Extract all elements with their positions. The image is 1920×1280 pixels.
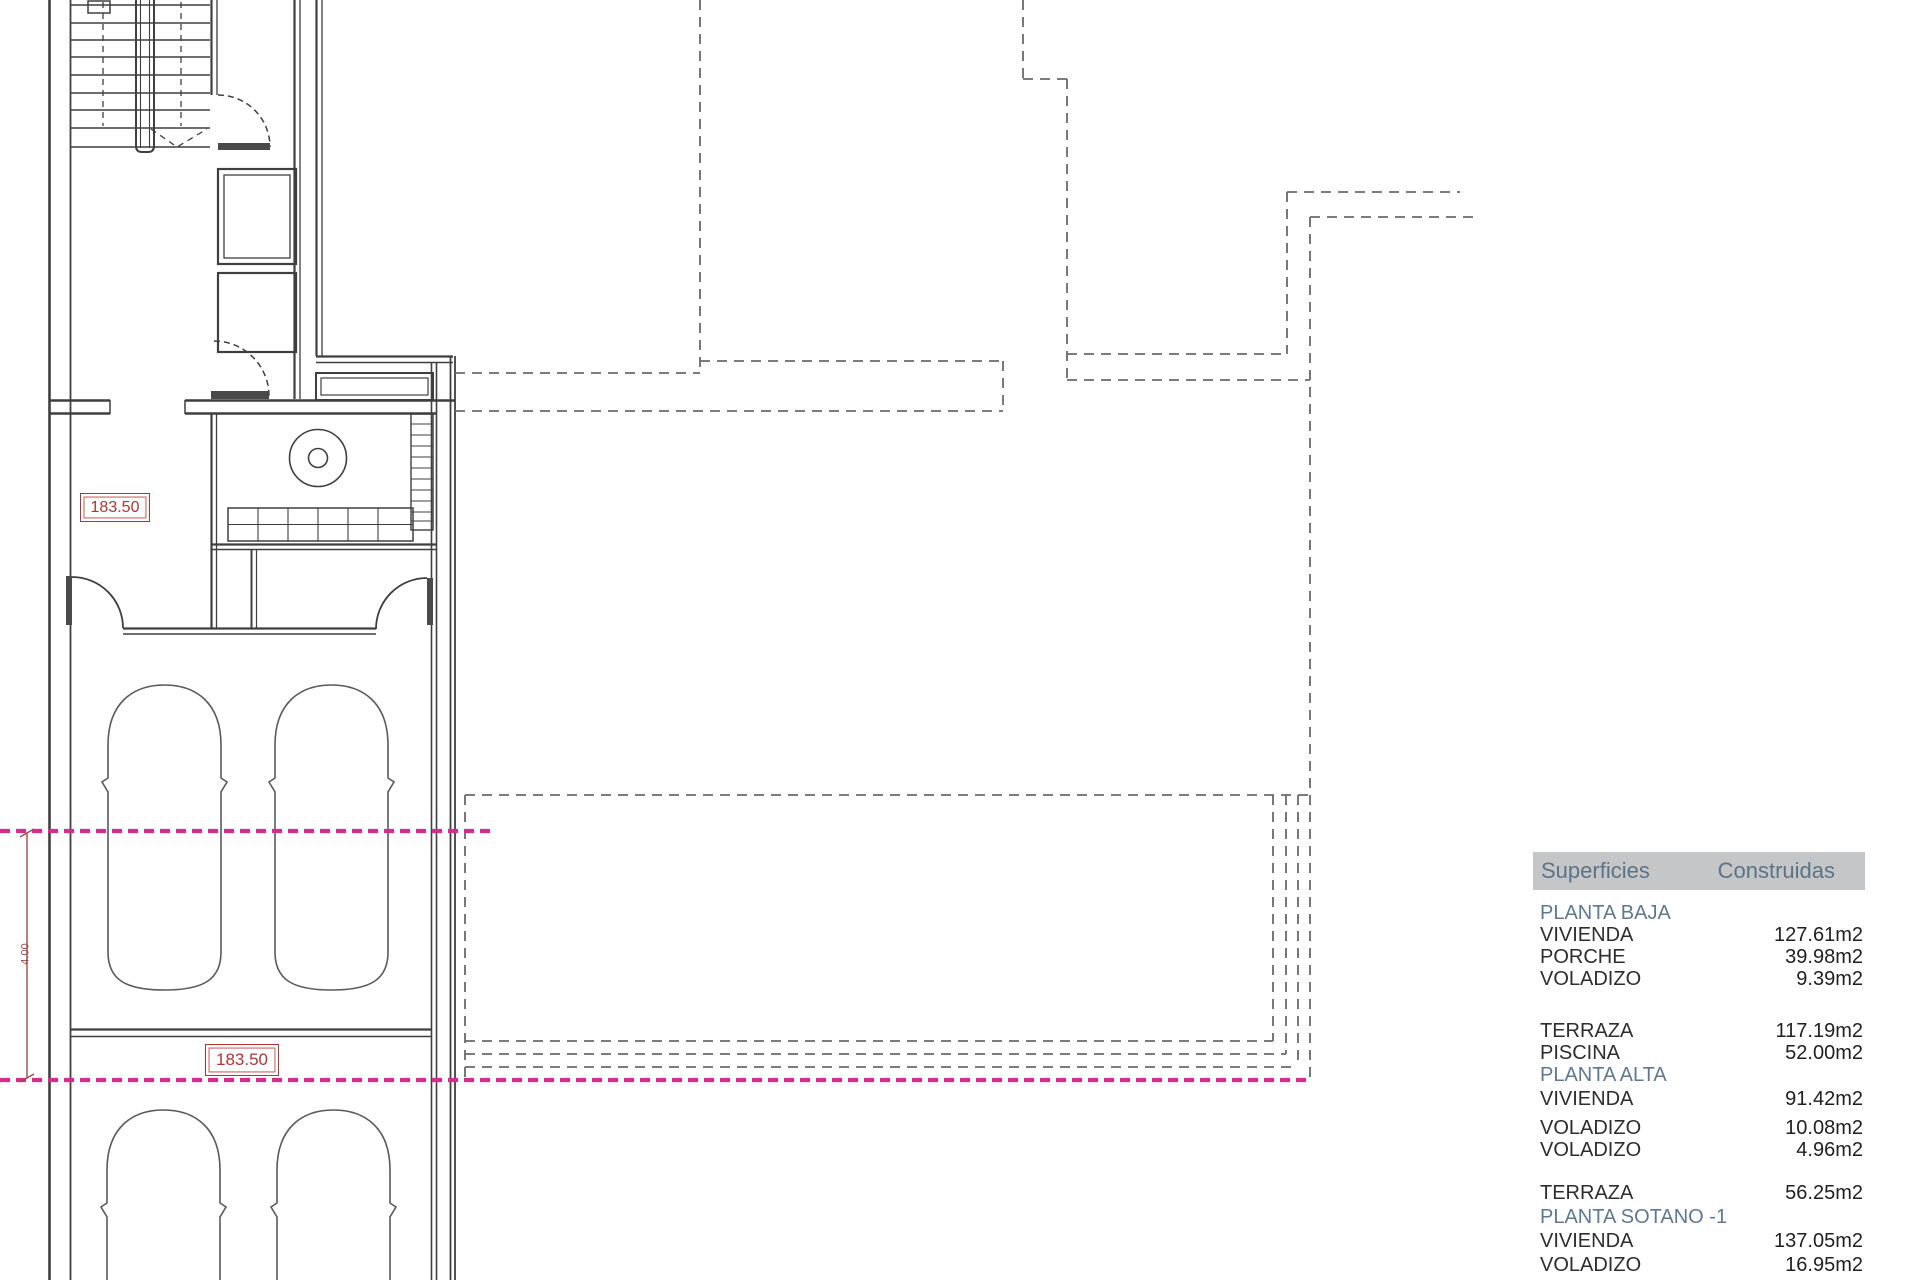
areas-header-built: Construidas <box>1718 858 1835 884</box>
door-jamb-right <box>427 578 433 625</box>
table-row: PORCHE 39.98m2 <box>1533 946 1865 968</box>
table-row: VOLADIZO 16.95m2 <box>1533 1254 1865 1276</box>
corridor-rooms <box>211 0 322 399</box>
table-row: VOLADIZO 9.39m2 <box>1533 968 1865 990</box>
section-lines <box>0 831 1312 1080</box>
door-arc-hall <box>214 341 269 396</box>
table-row: VIVIENDA 91.42m2 <box>1533 1088 1865 1110</box>
table-section-planta-baja: PLANTA BAJA <box>1533 902 1865 924</box>
kitchen-counter <box>228 508 413 541</box>
garage-rear-wall <box>70 1030 431 1037</box>
areas-table-header: Superficies Construidas <box>1533 852 1865 890</box>
areas-table-body: PLANTA BAJA VIVIENDA 127.61m2 PORCHE 39.… <box>1533 890 1865 1276</box>
table-row: VIVIENDA 127.61m2 <box>1533 924 1865 946</box>
table-row: PISCINA 52.00m2 <box>1533 1042 1865 1064</box>
car-icon <box>269 685 394 990</box>
car-icon <box>271 1110 396 1280</box>
canvas: 183.50 183.50 4.00 Superficies Construid… <box>0 0 1920 1280</box>
small-room <box>218 273 296 352</box>
cross-wall <box>49 400 455 414</box>
elevation-value: 183.50 <box>216 1050 268 1070</box>
window-ledge <box>316 373 433 400</box>
table-section-planta-sotano: PLANTA SOTANO -1 <box>1533 1206 1865 1228</box>
dimension-label: 4.00 <box>6 934 46 974</box>
terrace-dashed-outline <box>465 795 1310 1080</box>
floor-plan-page: { "plan": { "labels": { "elevation_hall"… <box>0 0 1920 1280</box>
table-row: TERRAZA 56.25m2 <box>1533 1182 1865 1204</box>
radiator-strip <box>411 414 433 530</box>
car-icon <box>101 1110 226 1280</box>
elevator-shaft <box>218 169 296 264</box>
door-jamb-left <box>66 576 72 625</box>
cars-upper <box>102 685 394 990</box>
table-section-planta-alta: PLANTA ALTA <box>1533 1064 1865 1086</box>
elevation-label-garage: 183.50 <box>205 1044 279 1076</box>
door-leaf-hall <box>211 391 269 399</box>
staircase <box>70 0 210 152</box>
door-arc-top <box>218 95 270 147</box>
left-wall <box>50 0 71 1280</box>
areas-table: Superficies Construidas PLANTA BAJA VIVI… <box>1533 852 1865 1276</box>
round-table-icon <box>290 430 347 487</box>
car-icon <box>102 685 227 990</box>
overhang-dashed-outline <box>455 0 1475 1080</box>
elevation-label-hall: 183.50 <box>80 493 150 522</box>
table-row: TERRAZA 117.19m2 <box>1533 1020 1865 1042</box>
kitchen <box>211 414 437 628</box>
table-row: VIVIENDA 137.05m2 <box>1533 1230 1865 1252</box>
garage-opening <box>66 576 433 634</box>
table-row: VOLADIZO 10.08m2 <box>1533 1117 1865 1139</box>
elevation-value: 183.50 <box>91 499 140 517</box>
areas-header-surfaces: Superficies <box>1541 858 1650 884</box>
cars-lower <box>101 1110 396 1280</box>
door-leaf-top <box>218 143 270 150</box>
table-row: VOLADIZO 4.96m2 <box>1533 1139 1865 1161</box>
